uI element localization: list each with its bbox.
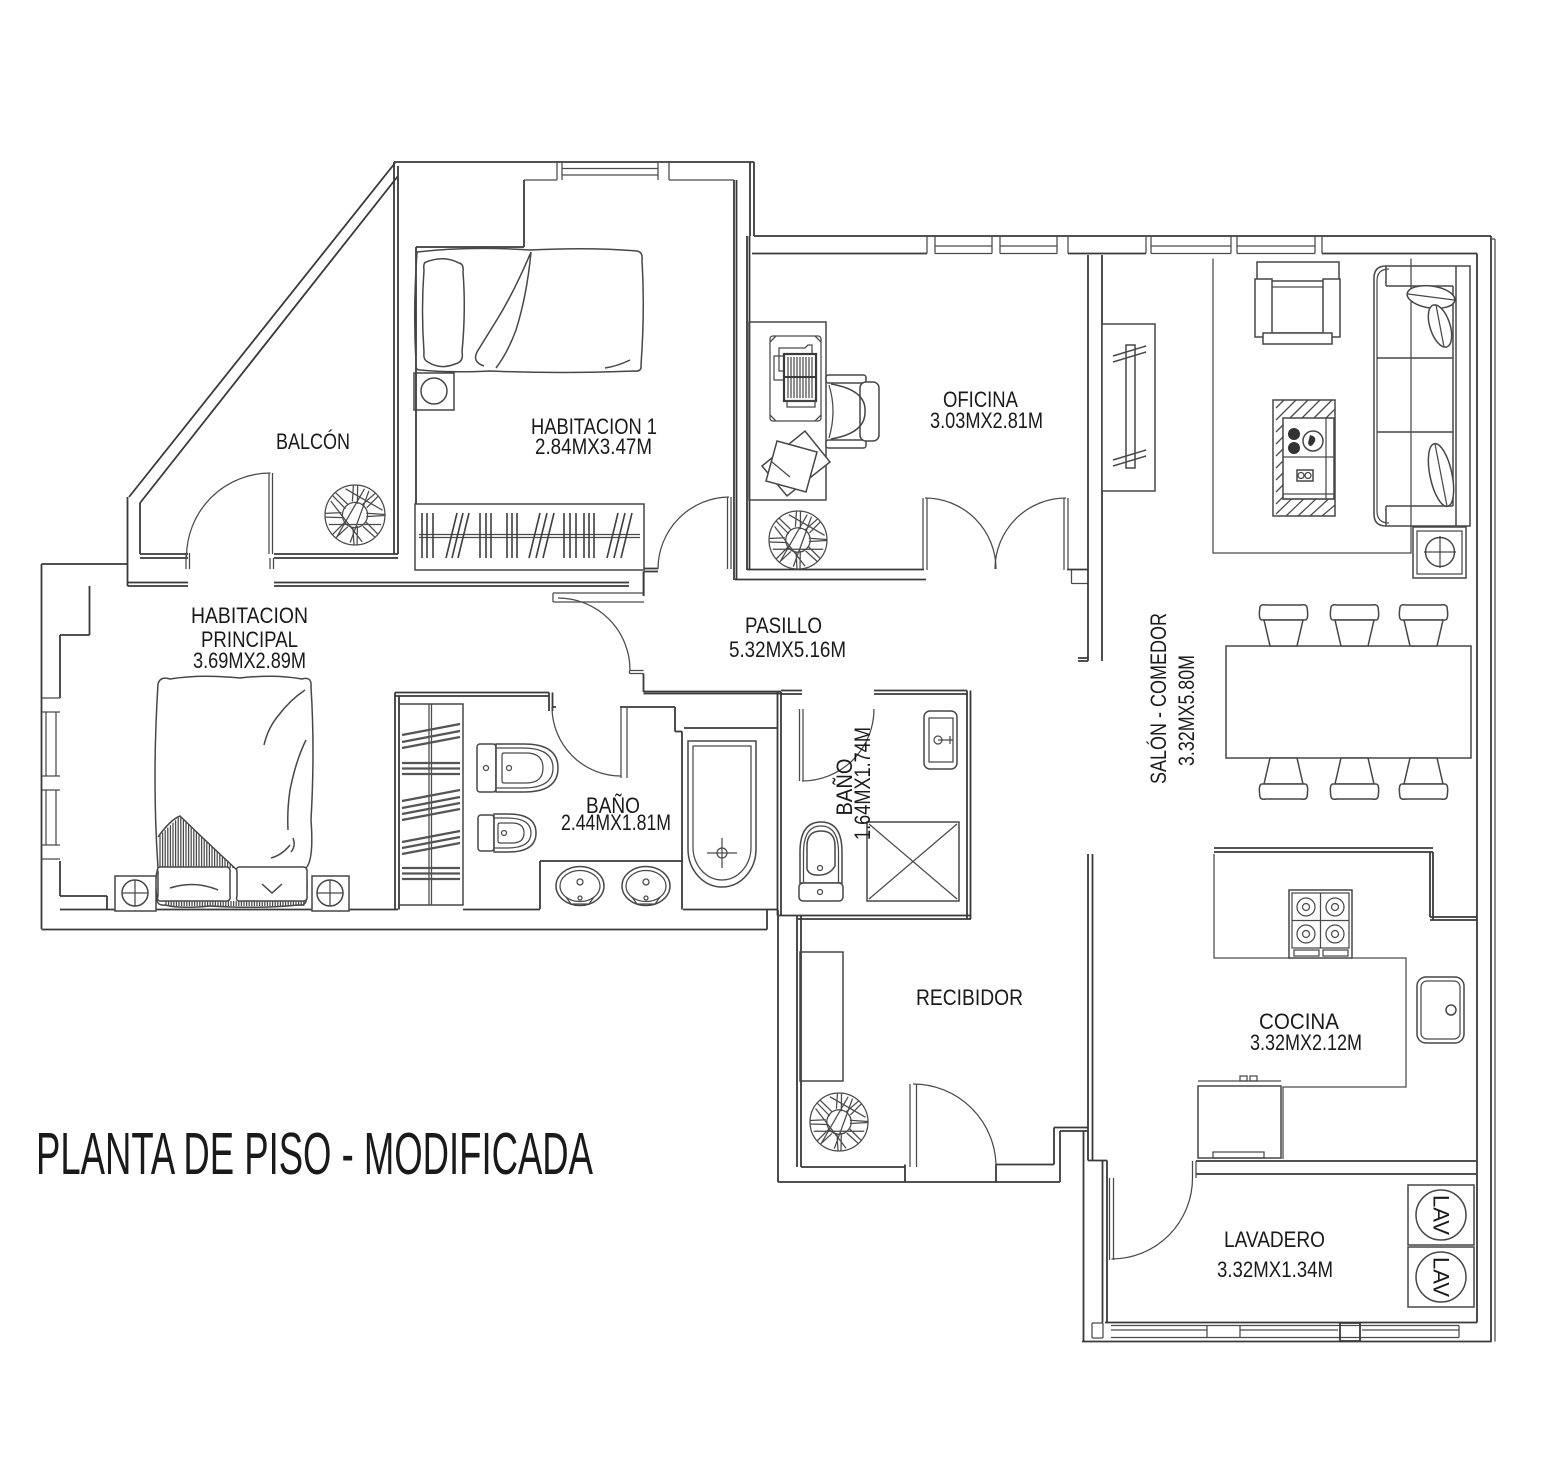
svg-text:RECIBIDOR: RECIBIDOR xyxy=(916,985,1023,1010)
svg-text:5.32MX5.16M: 5.32MX5.16M xyxy=(729,637,846,662)
svg-text:BALCÓN: BALCÓN xyxy=(276,429,350,454)
svg-text:3.69MX2.89M: 3.69MX2.89M xyxy=(193,648,306,673)
svg-text:3.32MX5.80M: 3.32MX5.80M xyxy=(1174,655,1199,766)
svg-text:PASILLO: PASILLO xyxy=(745,613,822,638)
svg-text:SALÓN - COMEDOR: SALÓN - COMEDOR xyxy=(1146,613,1171,784)
svg-text:3.32MX1.34M: 3.32MX1.34M xyxy=(1217,1257,1333,1282)
svg-text:PLANTA DE PISO - MODIFICADA: PLANTA DE PISO - MODIFICADA xyxy=(36,1121,593,1187)
svg-text:3.03MX2.81M: 3.03MX2.81M xyxy=(930,408,1043,433)
svg-text:LAVADERO: LAVADERO xyxy=(1224,1227,1325,1252)
svg-text:HABITACION: HABITACION xyxy=(191,603,308,628)
svg-text:1.64MX1.74M: 1.64MX1.74M xyxy=(850,727,875,840)
svg-text:2.84MX3.47M: 2.84MX3.47M xyxy=(535,434,652,459)
svg-text:LAV: LAV xyxy=(1429,1257,1454,1297)
svg-text:LAV: LAV xyxy=(1429,1195,1454,1235)
svg-text:3.32MX2.12M: 3.32MX2.12M xyxy=(1250,1030,1362,1055)
svg-text:2.44MX1.81M: 2.44MX1.81M xyxy=(561,810,671,835)
